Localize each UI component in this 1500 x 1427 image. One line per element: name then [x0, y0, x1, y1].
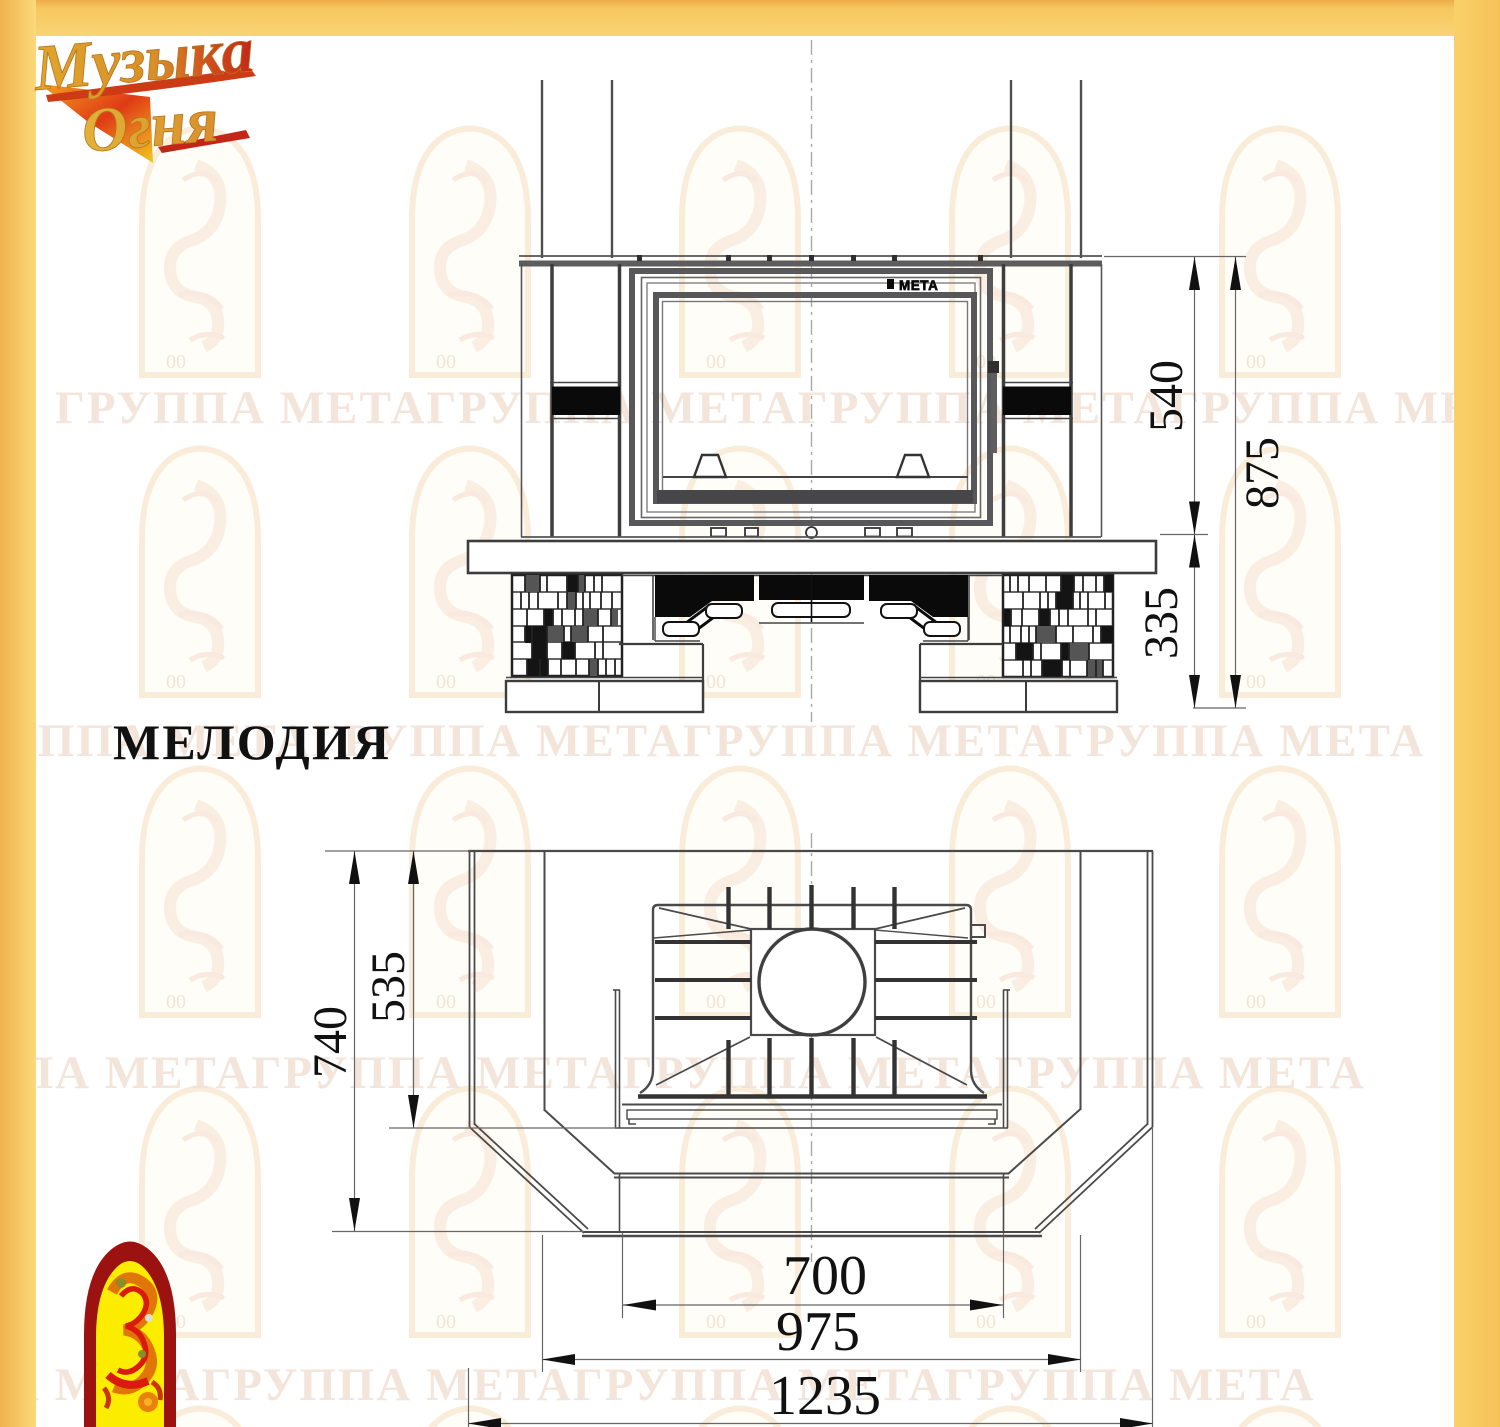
svg-text:00: 00: [1246, 351, 1266, 373]
svg-text:00: 00: [976, 991, 996, 1013]
svg-text:1235: 1235: [769, 1365, 881, 1427]
svg-text:00: 00: [166, 351, 186, 373]
svg-text:540: 540: [1140, 360, 1193, 432]
svg-text:00: 00: [1246, 1311, 1266, 1333]
svg-text:335: 335: [1135, 587, 1188, 659]
svg-text:МЕЛОДИЯ: МЕЛОДИЯ: [113, 714, 391, 770]
svg-text:ГРУППА МЕТАГРУППА МЕТАГРУППА М: ГРУППА МЕТАГРУППА МЕТАГРУППА МЕТАГРУППА …: [0, 1047, 1366, 1099]
svg-text:00: 00: [706, 351, 726, 373]
svg-text:00: 00: [1246, 671, 1266, 693]
svg-text:00: 00: [436, 671, 456, 693]
svg-text:МЕТА: МЕТА: [899, 278, 938, 293]
svg-text:535: 535: [362, 951, 415, 1023]
svg-text:ГРУППА МЕТАГРУППА МЕТАГРУППА М: ГРУППА МЕТАГРУППА МЕТАГРУППА МЕТАГРУППА …: [55, 382, 1500, 434]
svg-text:875: 875: [1236, 437, 1289, 509]
svg-text:00: 00: [436, 991, 456, 1013]
svg-text:00: 00: [436, 351, 456, 373]
svg-text:00: 00: [166, 991, 186, 1013]
svg-text:700: 700: [783, 1245, 867, 1307]
svg-text:740: 740: [304, 1006, 357, 1078]
svg-text:00: 00: [706, 991, 726, 1013]
svg-text:ГРУППА МЕТАГРУППА МЕТАГРУППА М: ГРУППА МЕТАГРУППА МЕТАГРУППА МЕТАГРУППА …: [0, 1359, 1316, 1411]
svg-text:00: 00: [1246, 991, 1266, 1013]
svg-text:00: 00: [166, 671, 186, 693]
svg-text:00: 00: [436, 1311, 456, 1333]
svg-text:00: 00: [706, 671, 726, 693]
svg-text:00: 00: [976, 1311, 996, 1333]
svg-text:975: 975: [776, 1301, 860, 1363]
svg-text:Огня: Огня: [79, 84, 221, 166]
svg-text:00: 00: [706, 1311, 726, 1333]
